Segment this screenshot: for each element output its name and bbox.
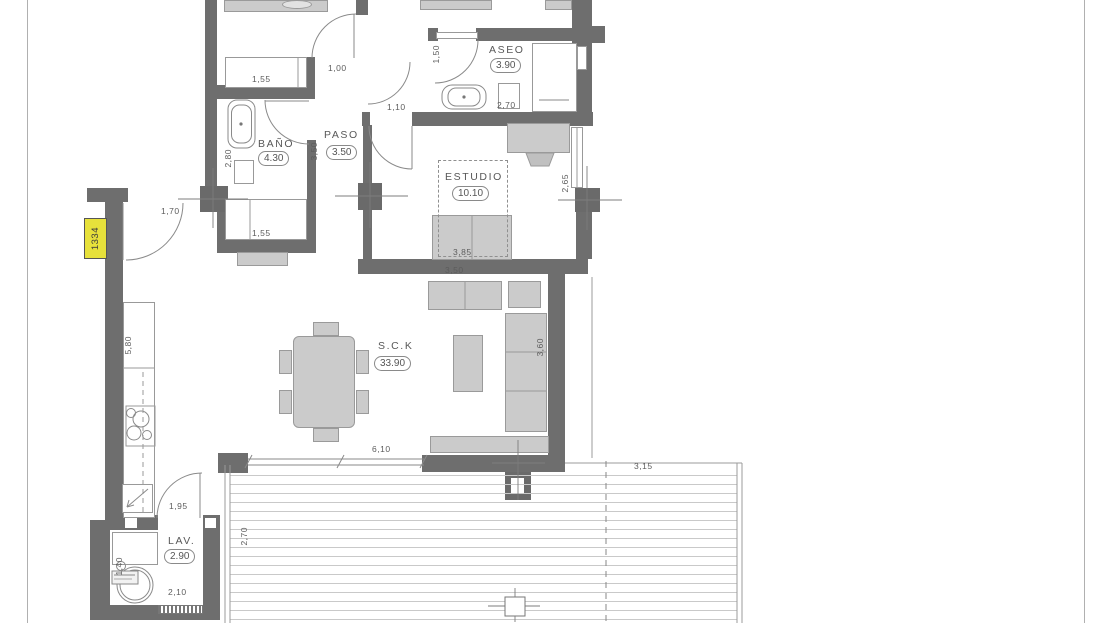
wall-paso-estudio-upper [363, 125, 372, 187]
dim-aseo-door: 1,50 [431, 45, 441, 64]
wall-aseo-top [476, 28, 576, 41]
desk-chair-estudio [526, 153, 554, 166]
dim-sofa-wall: 3,50 [445, 265, 464, 275]
furniture-top-middle [420, 0, 492, 10]
dim-sliding-door: 6,10 [372, 444, 391, 454]
dim-terrace-width: 3,15 [634, 461, 653, 471]
wall-closet-right-top [307, 57, 315, 99]
column-entry [200, 186, 228, 212]
duct-lav [205, 518, 216, 528]
dining-table [293, 336, 355, 428]
duct-kitchen [125, 517, 137, 528]
dim-lav-door: 1,95 [169, 501, 188, 511]
chair-right-1 [356, 350, 369, 374]
page-border-left [27, 0, 28, 623]
dim-door-bedroom: 1,00 [328, 63, 347, 73]
window-aseo [577, 46, 587, 70]
wall-estudio-north-stub [362, 112, 370, 126]
shower-aseo [532, 43, 577, 112]
floor-plan-page: 1334 BAÑO 4.30 PASO 3.50 ASEO 3.90 ESTUD… [0, 0, 1110, 623]
dim-aseo-width: 2,70 [497, 100, 516, 110]
dim-terrace-depth: 2,70 [239, 527, 249, 546]
chair-left-2 [279, 390, 292, 414]
bidet-banio [234, 160, 254, 184]
kitchen-sink [122, 484, 153, 513]
wall-topright-upper [572, 0, 592, 28]
dim-closet-banio: 1,55 [252, 228, 271, 238]
coffee-table [453, 335, 483, 392]
room-area-sck: 33.90 [374, 356, 411, 371]
room-name-estudio: ESTUDIO [445, 171, 503, 183]
room-name-lav: LAV. [168, 535, 195, 547]
bed-top-bedroom [224, 0, 328, 12]
column-paso [358, 183, 382, 210]
dim-estudio-door: 1,10 [387, 102, 406, 112]
wall-lav-east [203, 515, 220, 620]
wall-west [105, 202, 123, 520]
wall-entry-top [87, 188, 128, 202]
dim-kitchen-length: 5,80 [123, 336, 133, 355]
window-estudio [571, 127, 583, 188]
wall-bedroom-right-stub [356, 0, 368, 15]
dim-estudio-width: 3,85 [453, 247, 472, 257]
room-name-aseo: ASEO [489, 44, 525, 56]
aseo-door-leaf [436, 32, 478, 39]
room-area-estudio: 10.10 [452, 186, 489, 201]
room-area-aseo: 3.90 [490, 58, 521, 73]
unit-number-tag: 1334 [84, 218, 107, 259]
room-name-sck: S.C.K [378, 340, 413, 352]
dim-banio-length: 2,80 [223, 149, 233, 168]
room-area-banio: 4.30 [258, 151, 289, 166]
dim-lav-length: 2,10 [168, 587, 187, 597]
dim-paso-length: 3,50 [309, 142, 319, 161]
bench-south [430, 436, 549, 453]
dim-estudio-window: 2,65 [560, 174, 570, 193]
terrace-decking [230, 467, 737, 623]
chair-right-2 [356, 390, 369, 414]
furniture-top-right [545, 0, 572, 10]
room-name-banio: BAÑO [258, 138, 294, 150]
room-area-lav: 2.90 [164, 549, 195, 564]
desk-estudio [507, 123, 570, 153]
armchair [508, 281, 541, 308]
page-border-right [1084, 0, 1085, 623]
wall-living-east [548, 274, 565, 457]
sofa-two-seat [428, 281, 502, 310]
dim-entry-door: 1,70 [161, 206, 180, 216]
sofa-chaise [505, 313, 547, 432]
chair-bottom [313, 428, 339, 442]
wall-right-mid [576, 212, 592, 259]
dim-closet-bedroom: 1,55 [252, 74, 271, 84]
bathtub-banio [228, 100, 255, 148]
room-name-paso: PASO [324, 129, 359, 141]
wall-topright-corner [572, 26, 605, 43]
room-area-paso: 3.50 [326, 145, 357, 160]
vent-grille-lav [158, 605, 203, 614]
column-east [575, 188, 600, 212]
dim-living-east: 3,60 [535, 338, 545, 357]
unit-number: 1334 [90, 227, 101, 250]
pillow-bedroom [282, 0, 312, 9]
wall-estudio-south [358, 259, 588, 274]
wall-paso-estudio-lower [363, 203, 372, 261]
dim-lav-width: 1,40 [114, 557, 124, 576]
washbasin-aseo [442, 85, 486, 109]
wall-bedroom-left [205, 0, 217, 190]
chair-top [313, 322, 339, 336]
sideboard-living [237, 252, 288, 266]
chair-left-1 [279, 350, 292, 374]
